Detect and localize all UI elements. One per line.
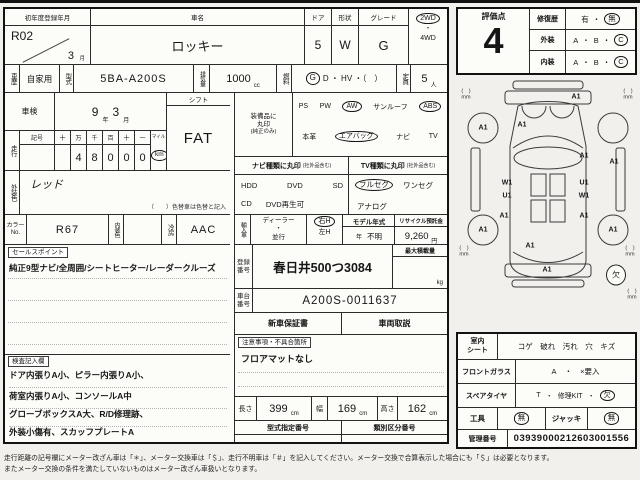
damage-mark: U1 (503, 193, 512, 200)
jack-none-circled: 無 (604, 412, 620, 424)
management-number-value: 03939000212603001556 (508, 430, 635, 447)
max-load-header: 最大積載量 (393, 245, 447, 257)
equip-leather: 本革 (302, 132, 316, 142)
tv-fullseg-circled: フルセグ (355, 179, 393, 191)
damage-mark: A1 (580, 153, 589, 160)
dot: ・ (582, 57, 590, 68)
dot: ・ (603, 57, 611, 68)
equipment-label-l3: (純正のみ) (251, 129, 277, 135)
navi-hdd: HDD (241, 181, 257, 190)
capacity-label: 定員 (397, 65, 411, 93)
mileage-symbol-header: 記号 (20, 131, 55, 145)
notes-tag: 注意事項・不具合箇所 (238, 337, 311, 348)
tv-row-2: アナログ (357, 201, 387, 212)
first-reg-value: R02 3 月 (5, 26, 91, 65)
recycle-yen: 円 (431, 236, 437, 245)
warranty-cell: 新車保証書 (235, 313, 342, 335)
ruled-line (238, 372, 444, 373)
equip-ps: PS (299, 103, 308, 110)
damage-mark: A1 (479, 125, 488, 132)
tv-header-text: TV種類に丸印 (361, 161, 405, 171)
seat-label: 室内 シート (458, 334, 498, 360)
max-load-cell: 最大積載量 kg (393, 245, 447, 289)
classification-value (342, 435, 447, 442)
model-year-header: モデル年式 (343, 215, 395, 227)
mileage-col-10k: 万 (71, 131, 87, 145)
sales-point-tag: セールスポイント (8, 247, 68, 258)
spare-tire-value: T ・ 修理KIT ・ 欠 (516, 384, 635, 408)
mileage-digit: 8 (87, 145, 103, 171)
notes-text: フロアマットなし (241, 352, 313, 365)
ext-color-cell: レッド （ ）色替車は色替と記入 (20, 171, 230, 215)
width-label: 幅 (312, 397, 328, 421)
shaken-year-unit: 年 (102, 115, 108, 124)
displacement-label: 排気量 (194, 65, 210, 93)
shaken-label: 車検 (5, 93, 55, 131)
drive-dot: ・ (425, 25, 432, 32)
navi-header-note: (社外品含む) (303, 162, 331, 169)
mileage-digit: 4 (71, 145, 87, 171)
navi-type-header: ナビ種類に丸印 (社外品含む) (235, 157, 349, 175)
mileage-col-1k: 千 (87, 131, 103, 145)
length-label: 長さ (235, 397, 257, 421)
recycle-value: 9,260 円 (395, 227, 447, 245)
ruled-line (8, 300, 227, 301)
shape-value: W (332, 26, 359, 65)
import-dot: ・ (275, 225, 282, 232)
int-color-label: 内装色 (109, 215, 124, 245)
spare-tire-label: スペアタイヤ (458, 384, 516, 408)
kg-unit: kg (437, 280, 443, 286)
jack-label: ジャッキ (546, 408, 588, 430)
import-parallel: 並行 (272, 234, 285, 241)
damage-mark: U1 (580, 180, 589, 187)
height-unit: cm (429, 411, 437, 417)
repair-yes: 有 (581, 14, 589, 25)
mileage-col-100: 百 (103, 131, 119, 145)
mileage-unit-cell: マイル km (151, 131, 167, 171)
manual-cell: 車両取説 (342, 313, 447, 335)
score-value: 4 (458, 23, 529, 59)
equipment-row-1: PS PW AW サンルーフ ABS (293, 101, 447, 112)
month-unit: 月 (79, 54, 85, 62)
shape-header: 形状 (332, 9, 359, 26)
missing-part-circled: 欠 (606, 265, 626, 286)
condition-panel: 室内 シート コゲ 破れ 汚れ 穴 キズ フロントガラス A ・ ×要入 スペア… (456, 332, 637, 449)
fuel-label: 燃料 (277, 65, 292, 93)
color-no-value: R67 (27, 215, 109, 245)
windshield-label: フロントガラス (458, 360, 516, 384)
mileage-col-10: 十 (119, 131, 135, 145)
damage-mark: A1 (543, 267, 552, 274)
shift-cell: シフト FAT (167, 93, 230, 171)
diagram-marks: A1A1A1A1A1W1U1U1W1A1A1A1A1A1A1( )mm( )mm… (456, 78, 639, 330)
import-dealer-cell: ディーラー ・ 並行 (251, 215, 307, 245)
left-panel: 初年度登録年月 R02 3 月 車名 ロッキー ドア 5 形状 W グレード G… (3, 7, 449, 444)
damage-mark: A1 (518, 122, 527, 129)
rating-panel: 評価点 4 修復歴 有 ・ 無 外装 A ・ B ・ C 内装 A ・ B ・ … (456, 7, 637, 75)
left-panel-right-block: 装備品に 丸印 (純正のみ) PS PW AW サンルーフ ABS 本革 エアバ… (234, 93, 447, 442)
auction-sheet: 初年度登録年月 R02 3 月 車名 ロッキー ドア 5 形状 W グレード G… (0, 0, 640, 480)
color-no-label: カラーNo. (5, 215, 27, 245)
capacity-value: 5 人 (411, 65, 447, 93)
mm-measure-mark: ( )mm (623, 89, 632, 102)
inspector-tag: 検査記入欄 (8, 356, 49, 367)
displacement-value: 1000 cc (210, 65, 277, 93)
mileage-digit: 0 (135, 145, 151, 171)
sales-point-block: セールスポイント 純正9型ナビ/全周囲/シートヒーター/レーダークルーズ (5, 245, 230, 355)
door-header: ドア (305, 9, 332, 26)
drive-2wd-circled: 2WD (416, 13, 440, 24)
inspector-line: ドア内張りA小、ピラー内張りA小、 (9, 369, 227, 388)
recycle-header: リサイクル預託金 (395, 215, 447, 227)
car-name-value: ロッキー (91, 26, 305, 65)
mile-label: マイル (151, 134, 166, 140)
length-value: 399 cm (257, 397, 312, 421)
interior-grade-c-circled: C (614, 56, 627, 68)
exterior-grade-c-circled: C (614, 34, 627, 46)
management-number-label: 管理番号 (458, 430, 508, 447)
chassis-value: A200S-0011637 (253, 289, 447, 313)
seat-label-l1: 室内 (471, 338, 485, 345)
top-border (0, 0, 640, 3)
equipment-label-l1: 装備品に (251, 113, 277, 120)
ruled-line (8, 322, 227, 323)
tv-row-1: フルセグ ワンセグ (355, 179, 433, 191)
tools-value: 無 (498, 408, 546, 430)
damage-mark: W1 (502, 180, 513, 187)
exterior-grade-value: A ・ B ・ C (566, 30, 635, 51)
model-year-cell: モデル年式 年 不明 (343, 215, 395, 245)
damage-mark: A1 (500, 213, 509, 220)
mileage-digit: 0 (103, 145, 119, 171)
height-label: 高さ (378, 397, 398, 421)
damage-mark: A1 (580, 213, 589, 220)
equipment-label-l2: 丸印 (257, 121, 270, 128)
damage-mark: A1 (609, 227, 618, 234)
grade-a: A (573, 36, 578, 45)
shift-header: シフト (167, 93, 230, 106)
drive-type-cell: 2WD ・ 4WD (409, 9, 447, 65)
mileage-digit: 0 (119, 145, 135, 171)
damage-mark: A1 (572, 94, 581, 101)
width-number: 169 (338, 403, 356, 415)
model-year-unknown: 不明 (367, 231, 382, 242)
interior-grade-value: A ・ B ・ C (566, 51, 635, 73)
mileage-col-1: 一 (135, 131, 151, 145)
navi-header-text: ナビ種類に丸印 (252, 161, 301, 171)
length-unit: cm (291, 411, 299, 417)
damage-diagram: A1A1A1A1A1W1U1U1W1A1A1A1A1A1A1( )mm( )mm… (456, 78, 639, 330)
shaken-value: 9 年 3 月 (55, 93, 167, 131)
equipment-row-2: 本革 エアバッグ ナビ TV (293, 131, 447, 142)
disclaimer-line-2: またメーター交換の条件を満たしていないものはメーター改ざん車扱いとなります。 (4, 464, 636, 475)
tools-label: 工具 (458, 408, 498, 430)
drive-4wd: 4WD (420, 35, 436, 42)
width-unit: cm (359, 411, 367, 417)
dot: ・ (565, 366, 573, 377)
damage-mark: A1 (526, 243, 535, 250)
fuel-gasoline-circled: G (306, 72, 320, 85)
damage-mark: A1 (610, 159, 619, 166)
notes-block: 注意事項・不具合箇所 フロアマットなし (235, 335, 447, 397)
height-value: 162 cm (398, 397, 447, 421)
equip-pw: PW (320, 103, 331, 110)
shaken-month-unit: 月 (123, 115, 129, 124)
capacity-unit: 人 (431, 80, 437, 89)
jack-value: 無 (588, 408, 635, 430)
dot: ・ (593, 14, 601, 25)
door-value: 5 (305, 26, 332, 65)
model-code-value: 5BA-A200S (74, 65, 194, 93)
dot: ・ (582, 35, 590, 46)
equip-tv: TV (429, 133, 438, 140)
ext-color-value: レッド (30, 176, 63, 192)
import-label: 輸入車 (235, 215, 251, 245)
navi-cd: CD (241, 199, 252, 210)
mm-measure-mark: ( )mm (627, 289, 636, 302)
ext-color-label: 外装色 (5, 171, 20, 215)
fuel-others: D ・ HV ・（ ） (323, 73, 383, 84)
handle-cell: 右H 左H (307, 215, 343, 245)
model-designation-value (235, 435, 342, 442)
ac-label: 冷房 (162, 215, 177, 245)
cc-unit: cc (254, 83, 260, 89)
mm-measure-mark: ( )mm (461, 89, 470, 102)
recycle-amount: 9,260 (405, 231, 429, 242)
tv-type-header: TV種類に丸印 (社外品含む) (349, 157, 447, 175)
navi-row-2: CD DVD再生可 (241, 199, 304, 210)
classification-header: 類別区分番号 (342, 421, 447, 435)
equipment-items: PS PW AW サンルーフ ABS 本革 エアバッグ ナビ TV (293, 93, 447, 157)
navi-dvd: DVD (287, 181, 303, 190)
inspector-line: 外装小傷有、スカッフプレートA (9, 423, 227, 442)
tv-type-values: フルセグ ワンセグ アナログ (349, 175, 447, 215)
car-name-header: 車名 (91, 9, 305, 26)
inspector-block: 検査記入欄 ドア内張りA小、ピラー内張りA小、 荷室内張りA小、コンソールA中 … (5, 355, 230, 442)
spare-missing-circled: 欠 (600, 390, 615, 401)
damage-mark: W1 (579, 193, 590, 200)
model-year-value: 年 不明 (343, 227, 395, 245)
model-designation-header: 型式指定番号 (235, 421, 342, 435)
navi-type-values: HDD DVD SD CD DVD再生可 (235, 175, 349, 215)
glass-x: ×要入 (580, 366, 599, 377)
repair-no-circled: 無 (604, 13, 620, 25)
grade-b: B (594, 58, 599, 67)
grade-value: G (359, 26, 409, 65)
ac-value: AAC (177, 215, 230, 245)
tools-none-circled: 無 (514, 412, 530, 424)
equip-abs-circled: ABS (419, 101, 441, 112)
seat-label-l2: シート (467, 347, 488, 354)
score-cell: 評価点 4 (458, 9, 530, 73)
history-value: 自家用 (20, 65, 60, 93)
navi-row-1: HDD DVD SD (241, 181, 343, 190)
ruled-line (8, 344, 227, 345)
mm-measure-mark: ( )mm (625, 246, 634, 259)
first-reg-month: 3 (68, 50, 74, 62)
ext-color-note: （ ）色替車は色替と記入 (148, 202, 226, 211)
model-year-unit: 年 (356, 232, 362, 241)
repair-history-label: 修復歴 (530, 9, 566, 30)
seat-condition-items: コゲ 破れ 汚れ 穴 キズ (498, 334, 635, 360)
width-value: 169 cm (328, 397, 378, 421)
exterior-grade-label: 外装 (530, 30, 566, 51)
capacity-number: 5 (421, 73, 427, 85)
recycle-cell: リサイクル預託金 9,260 円 (395, 215, 447, 245)
height-number: 162 (408, 403, 426, 415)
int-color-value (124, 215, 162, 245)
grade-b: B (594, 36, 599, 45)
spare-kit: 修理KIT (558, 391, 583, 401)
import-dealer: ディーラー (262, 217, 294, 224)
spare-t: T (536, 392, 540, 399)
sales-point-text: 純正9型ナビ/全周囲/シートヒーター/レーダークルーズ (9, 262, 216, 274)
right-handle-circled: 右H (314, 216, 334, 227)
grade-header: グレード (359, 9, 409, 26)
dot: ・ (546, 391, 553, 401)
windshield-value: A ・ ×要入 (516, 360, 635, 384)
grade-a: A (573, 58, 578, 67)
ruled-line (8, 278, 227, 279)
displacement-number: 1000 (226, 73, 250, 85)
reg-number-label: 登録番号 (235, 245, 253, 289)
tv-oneseg: ワンセグ (403, 180, 433, 191)
dot: ・ (603, 35, 611, 46)
first-reg-header: 初年度登録年月 (5, 9, 91, 26)
chassis-label: 車台番号 (235, 289, 253, 313)
equip-sunroof: サンルーフ (373, 102, 408, 112)
mileage-digit (55, 145, 71, 171)
km-unit-circled: km (151, 150, 167, 161)
navi-sd: SD (333, 181, 343, 190)
equip-airbag-circled: エアバッグ (335, 131, 378, 142)
ruled-line (238, 386, 444, 387)
fuel-value: G D ・ HV ・（ ） (292, 65, 397, 93)
glass-a: A (552, 367, 557, 376)
history-label: 車歴 (5, 65, 20, 93)
first-reg-year: R02 (11, 29, 33, 43)
disclaimer: 走行距離の記号欄にメーター改ざん車は「＊」、メーター交換車は「＄」、走行不明車は… (4, 453, 636, 475)
shift-value: FAT (167, 106, 230, 171)
mileage-symbol-value (20, 145, 55, 171)
repair-history-value: 有 ・ 無 (566, 9, 635, 30)
equipment-label: 装備品に 丸印 (純正のみ) (235, 93, 293, 157)
disclaimer-line-1: 走行距離の記号欄にメーター改ざん車は「＊」、メーター交換車は「＄」、走行不明車は… (4, 453, 636, 464)
model-code-label: 型式 (60, 65, 74, 93)
navi-dvdplay: DVD再生可 (266, 199, 304, 210)
mileage-col-100k: 十 (55, 131, 71, 145)
mm-measure-mark: ( )mm (459, 246, 468, 259)
tv-header-note: (社外品含む) (407, 162, 435, 169)
equip-aw-circled: AW (342, 101, 361, 112)
mileage-label: 走行 (5, 131, 20, 171)
equip-navi: ナビ (396, 132, 410, 142)
reg-number-value: 春日井500つ3084 (253, 245, 393, 289)
shaken-year: 9 (92, 105, 99, 119)
shaken-month: 3 (113, 105, 120, 119)
interior-grade-label: 内装 (530, 51, 566, 73)
length-number: 399 (269, 403, 287, 415)
tv-analog: アナログ (357, 202, 387, 211)
damage-mark: A1 (479, 227, 488, 234)
dot: ・ (588, 391, 595, 401)
left-handle: 左H (318, 229, 330, 236)
